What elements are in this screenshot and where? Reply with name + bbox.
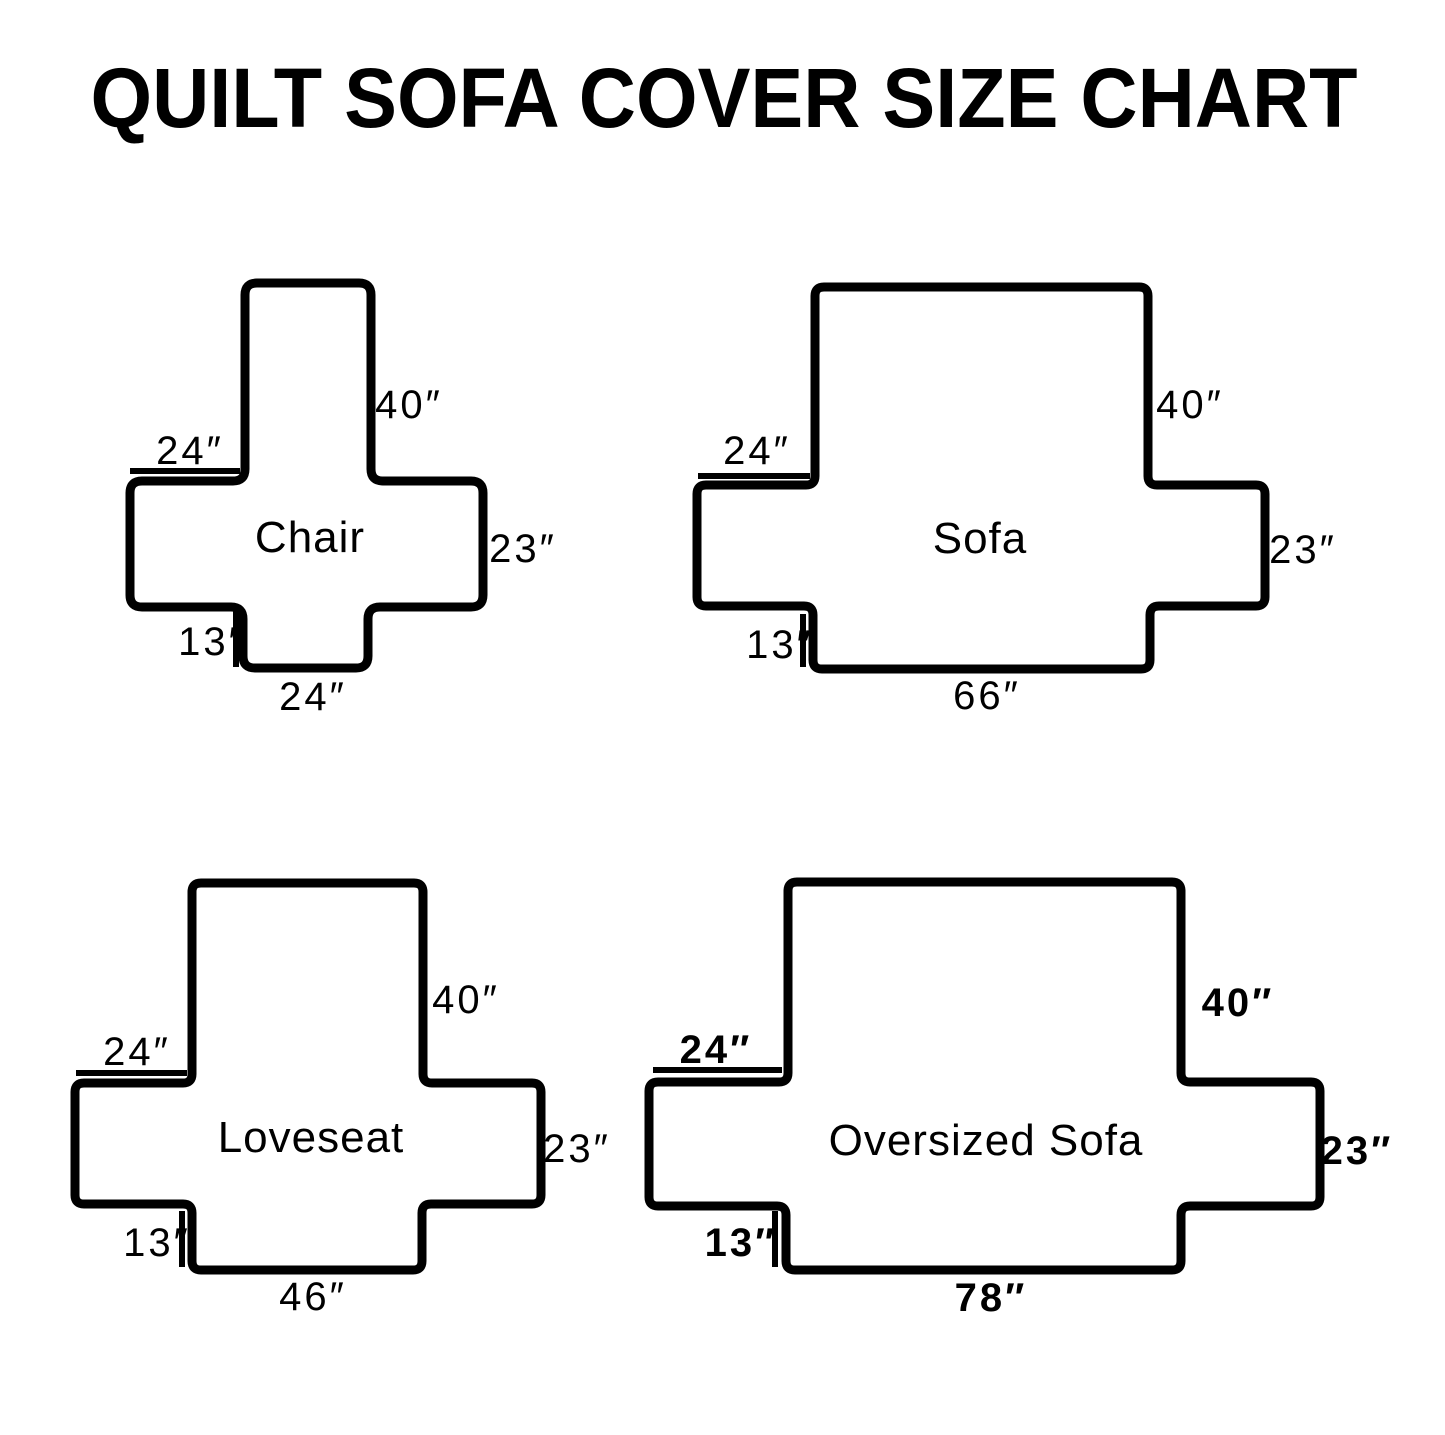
loveseat-outline [75,883,541,1270]
chair-side-height-label: 23″ [489,527,557,571]
sofa-flap-drop-label: 13″ [746,623,814,667]
chair-arm-length-label: 24″ [156,429,224,473]
chair-name-label: Chair [255,513,365,562]
chair-outline [130,283,483,668]
diagram-canvas: QUILT SOFA COVER SIZE CHART 40″ 24″ Chai… [0,0,1445,1435]
oversized-sofa-flap-drop-label: 13″ [705,1221,778,1265]
loveseat-side-height-label: 23″ [543,1127,611,1171]
page-title: QUILT SOFA COVER SIZE CHART [91,51,1358,145]
chair-diagram: 40″ 24″ Chair 23″ 13″ 24″ [130,283,557,719]
chair-seat-width-label: 24″ [279,675,347,719]
loveseat-flap-drop-label: 13″ [123,1221,191,1265]
oversized-sofa-outline [649,882,1320,1270]
sofa-back-height-label: 40″ [1156,383,1224,427]
oversized-sofa-seat-width-label: 78″ [955,1276,1028,1320]
oversized-sofa-diagram: 40″ 24″ Oversized Sofa 23″ 13″ 78″ [649,882,1393,1320]
loveseat-back-height-label: 40″ [432,978,500,1022]
loveseat-seat-width-label: 46″ [279,1275,347,1319]
chair-flap-drop-label: 13″ [178,620,246,664]
size-chart-page: QUILT SOFA COVER SIZE CHART 40″ 24″ Chai… [0,0,1445,1435]
loveseat-diagram: 40″ 24″ Loveseat 23″ 13″ 46″ [75,883,611,1319]
oversized-sofa-arm-length-label: 24″ [680,1028,753,1072]
sofa-name-label: Sofa [933,514,1028,563]
chair-back-height-label: 40″ [375,383,443,427]
sofa-arm-length-label: 24″ [723,429,791,473]
sofa-diagram: 40″ 24″ Sofa 23″ 13″ 66″ [697,287,1337,718]
oversized-sofa-back-height-label: 40″ [1202,981,1275,1025]
sofa-seat-width-label: 66″ [953,674,1021,718]
oversized-sofa-name-label: Oversized Sofa [829,1116,1144,1165]
sofa-side-height-label: 23″ [1269,528,1337,572]
loveseat-name-label: Loveseat [218,1113,405,1162]
loveseat-arm-length-label: 24″ [103,1030,171,1074]
oversized-sofa-side-height-label: 23″ [1321,1129,1394,1173]
